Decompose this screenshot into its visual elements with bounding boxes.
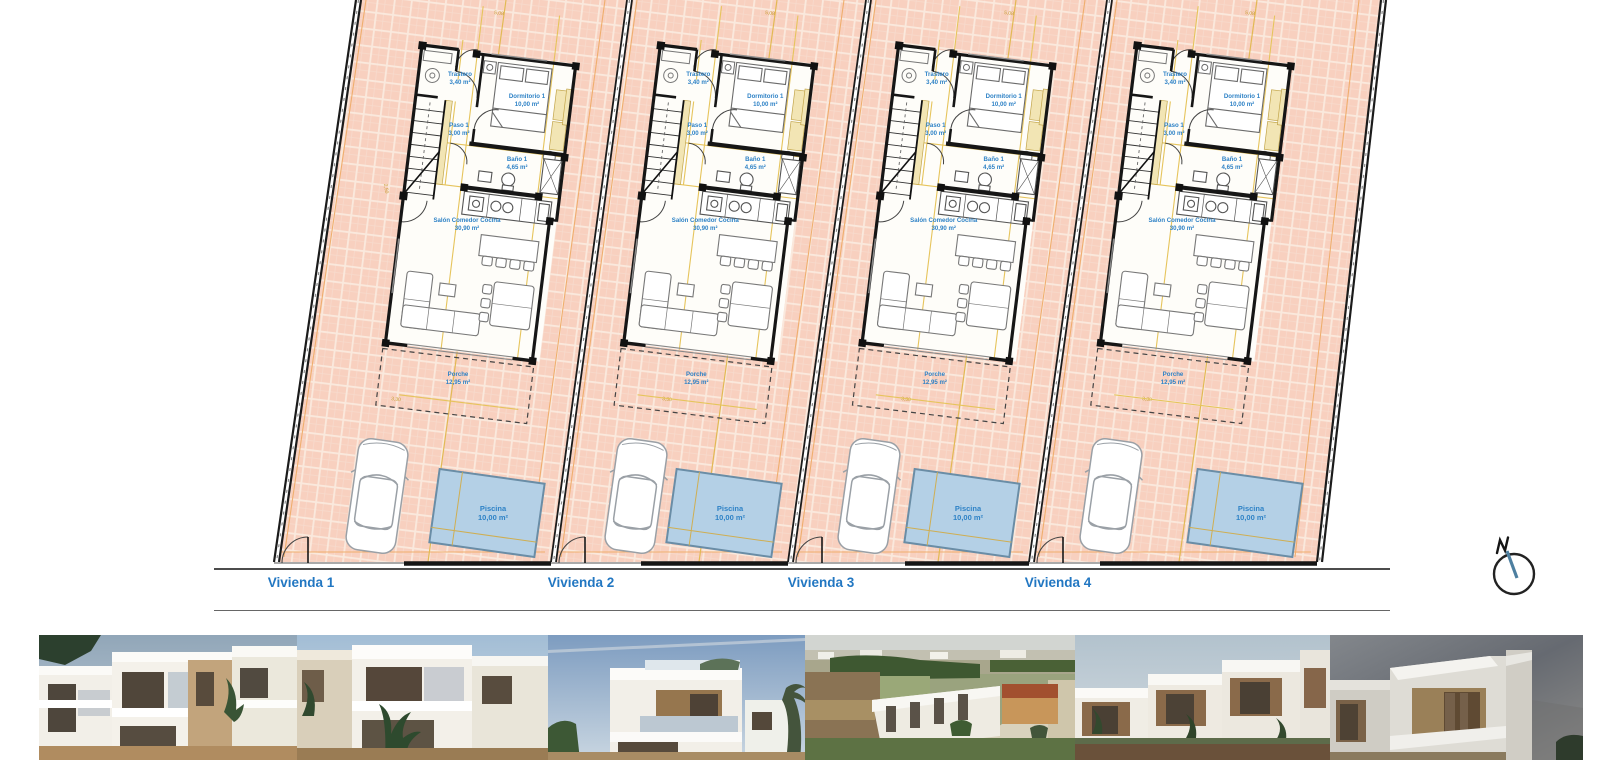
svg-text:10,00 m²: 10,00 m² — [1236, 513, 1267, 522]
svg-text:Piscina: Piscina — [717, 504, 744, 513]
svg-text:5,08: 5,08 — [1245, 10, 1256, 17]
svg-text:3,30: 3,30 — [662, 396, 673, 403]
svg-text:5,08: 5,08 — [765, 10, 776, 17]
svg-text:Vivienda 2: Vivienda 2 — [548, 575, 615, 590]
svg-text:5,08: 5,08 — [1004, 10, 1015, 17]
svg-text:Piscina: Piscina — [1238, 504, 1265, 513]
svg-text:10,00 m²: 10,00 m² — [953, 513, 984, 522]
svg-text:Vivienda 1: Vivienda 1 — [268, 575, 335, 590]
svg-text:3,30: 3,30 — [901, 396, 912, 403]
svg-text:10,00 m²: 10,00 m² — [715, 513, 746, 522]
svg-text:Piscina: Piscina — [955, 504, 982, 513]
svg-text:Piscina: Piscina — [480, 504, 507, 513]
svg-text:Vivienda 4: Vivienda 4 — [1025, 575, 1092, 590]
svg-text:3,30: 3,30 — [391, 396, 402, 403]
svg-text:5,08: 5,08 — [494, 10, 505, 17]
svg-text:10,00 m²: 10,00 m² — [478, 513, 509, 522]
svg-text:Vivienda 3: Vivienda 3 — [788, 575, 855, 590]
